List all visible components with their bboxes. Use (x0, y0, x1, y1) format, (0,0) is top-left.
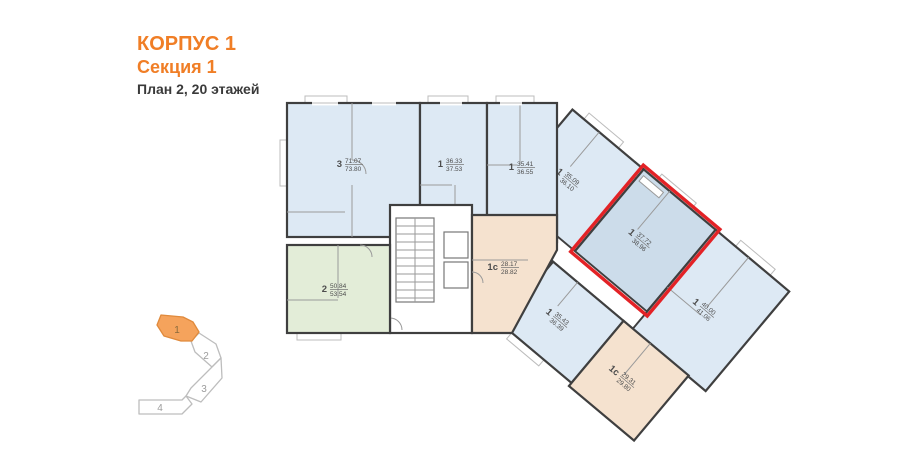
minimap-section-4[interactable]: 4 (139, 396, 192, 414)
svg-text:1: 1 (174, 325, 180, 336)
svg-text:37.53: 37.53 (446, 166, 463, 173)
svg-text:35.41: 35.41 (517, 161, 534, 168)
svg-text:28.82: 28.82 (501, 269, 518, 276)
svg-text:53.54: 53.54 (330, 291, 347, 298)
svg-text:36.33: 36.33 (446, 158, 463, 165)
svg-text:3: 3 (337, 159, 342, 170)
svg-text:4: 4 (157, 403, 163, 414)
svg-text:1: 1 (438, 159, 444, 170)
left-wing: 3 71.07 73.80 1 36.33 37.53 1 35.41 36.5… (280, 96, 557, 340)
svg-text:50.84: 50.84 (330, 283, 347, 290)
svg-text:36.55: 36.55 (517, 169, 534, 176)
stair-core (390, 205, 472, 333)
svg-text:3: 3 (201, 384, 207, 395)
svg-text:73.80: 73.80 (345, 166, 362, 173)
svg-text:71.07: 71.07 (345, 158, 362, 165)
minimap-section-3[interactable]: 3 (186, 358, 222, 402)
minimap: 2 3 4 1 (139, 315, 222, 414)
floor-plan-svg: 1 35.09 36.10 1 37.72 38.96 1 40.00 41.0… (0, 0, 900, 450)
svg-text:1с: 1с (487, 262, 498, 273)
minimap-section-1-active[interactable]: 1 (157, 315, 199, 341)
svg-text:28.17: 28.17 (501, 261, 518, 268)
svg-text:2: 2 (322, 284, 327, 295)
page: КОРПУС 1 Секция 1 План 2, 20 этажей (0, 0, 900, 450)
svg-text:2: 2 (203, 351, 209, 362)
svg-text:1: 1 (509, 162, 515, 173)
staircase (396, 218, 434, 302)
